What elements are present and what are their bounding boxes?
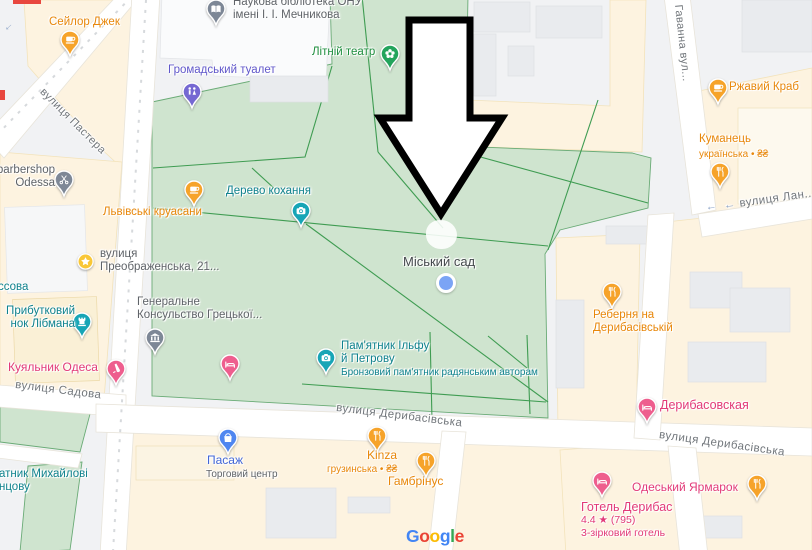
poi-pin-pamiatnyk-ilfu-i-petrovu-camera-icon[interactable] xyxy=(316,348,336,381)
poi-label-hotel-derybas-2[interactable]: 4.4 ★ (795) xyxy=(581,515,635,527)
poi-label-seilor-dzhek[interactable]: Сейлор Джек xyxy=(49,16,120,29)
poi-label-hotel-derybas[interactable]: Готель Дерибас xyxy=(581,500,672,514)
poi-label-rzhavyi-krab[interactable]: Ржавий Краб xyxy=(729,81,799,94)
poi-label-hambrinus[interactable]: Гамбрінус xyxy=(388,475,443,488)
poi-label-rebernia-na-derybasivskii[interactable]: Реберня наДерибасівській xyxy=(593,309,673,335)
poi-pin-kumanets-restaurant-icon[interactable] xyxy=(710,162,730,195)
poi-label-pamiatnyk-mykhailovi-partial[interactable]: атник Михайловінцову xyxy=(0,468,88,494)
poi-label-barbershop-odessa[interactable]: barbershopOdessa xyxy=(0,164,55,190)
poi-label-odeskyi-yarmarok[interactable]: Одеський Ярмарок xyxy=(632,481,738,494)
poi-label-kinza[interactable]: Kinza xyxy=(367,449,397,462)
poi-label-hromadskyi-tualet[interactable]: Громадський туалет xyxy=(168,64,276,77)
poi-label-ssova-partial[interactable]: ссова xyxy=(0,281,28,294)
poi-pin-prybutkovyi-budynok-libmana-castle-icon[interactable] xyxy=(72,312,92,345)
poi-label-litnii-teatr[interactable]: Літній театр xyxy=(312,46,375,59)
poi-label-pamiatnyk-ilfu-i-petrovu[interactable]: Пам'ятник Ільфуй Петрову xyxy=(341,340,429,366)
poi-label-kuialnyk-odesa[interactable]: Куяльник Одеса xyxy=(8,361,98,374)
poi-label-pamiatnyk-ilfu-i-petrovu-2[interactable]: Бронзовий пам'ятник радянським авторам xyxy=(341,367,538,378)
map-canvas xyxy=(0,0,812,550)
oneway-arrow-icon: ← xyxy=(723,198,737,212)
poi-pin-derevo-kokhannia-camera-icon[interactable] xyxy=(291,201,311,234)
google-logo[interactable]: Google xyxy=(406,526,464,547)
poi-label-vulytsia-preobrazhenska-21[interactable]: вулицяПреображенська, 21... xyxy=(100,248,219,274)
current-location-dot xyxy=(436,273,456,293)
park-monument-blob xyxy=(426,220,457,249)
poi-pin-barbershop-odessa-scissors-icon[interactable] xyxy=(54,170,74,203)
poi-label-lvivski-kruasany[interactable]: Львівські круасани xyxy=(103,206,202,219)
poi-pin-vulytsia-preobrazhenska-21-star-icon[interactable] xyxy=(77,253,94,275)
poi-label-derybasovskaia[interactable]: Дерибасовская xyxy=(660,398,749,412)
poi-label-naukova-biblioteka[interactable]: Наукова бібліотека ОНУімені І. І. Мечник… xyxy=(233,0,362,22)
poi-label-kumanets-2[interactable]: українська • ₴₴ xyxy=(699,149,768,160)
poi-pin-hromadskyi-tualet-toilet-icon[interactable] xyxy=(182,82,202,115)
poi-label-heneralne-konsulstvo-hretskoi[interactable]: ГенеральнеКонсульство Грецької... xyxy=(137,296,262,322)
poi-pin-heneralne-konsulstvo-hretskoi-bank-icon[interactable] xyxy=(145,328,165,361)
clipped-red-label-fragment xyxy=(13,0,41,4)
poi-pin-naukova-biblioteka-book-icon[interactable] xyxy=(206,0,226,32)
poi-pin-derybasovskaia-bed-icon[interactable] xyxy=(637,397,657,430)
poi-pin-rzhavyi-krab-cafe-icon[interactable] xyxy=(708,78,728,111)
poi-pin-odeskyi-yarmarok-restaurant-icon[interactable] xyxy=(747,474,767,507)
poi-pin-litnii-teatr-flower-icon[interactable] xyxy=(380,44,400,77)
poi-label-derevo-kokhannia[interactable]: Дерево кохання xyxy=(226,185,311,198)
poi-label-pasazh-2[interactable]: Торговий центр xyxy=(206,469,278,480)
poi-pin-hotel-pin-unlabeled-bed-icon[interactable] xyxy=(220,354,240,387)
clipped-red-pin-fragment xyxy=(0,90,5,100)
poi-label-kumanets[interactable]: Куманець xyxy=(699,133,751,146)
map-viewport[interactable]: вулиця ПастераГаванна вул...←вулиця Лан.… xyxy=(0,0,812,550)
oneway-arrow-icon: → xyxy=(705,202,718,215)
poi-label-pasazh[interactable]: Пасаж xyxy=(207,454,243,467)
area-label-miskyi-sad: Міський сад xyxy=(403,254,475,269)
poi-label-kinza-2[interactable]: грузинська • ₴₴ xyxy=(327,464,397,475)
poi-pin-kuialnyk-odesa-bottle-icon[interactable] xyxy=(106,359,126,392)
poi-label-prybutkovyi-budynok-libmana[interactable]: Прибутковийнок Лібмана xyxy=(0,305,75,331)
poi-label-hotel-derybas-3[interactable]: 3-зірковий готель xyxy=(581,528,665,540)
poi-pin-seilor-dzhek-cafe-icon[interactable] xyxy=(60,30,80,63)
